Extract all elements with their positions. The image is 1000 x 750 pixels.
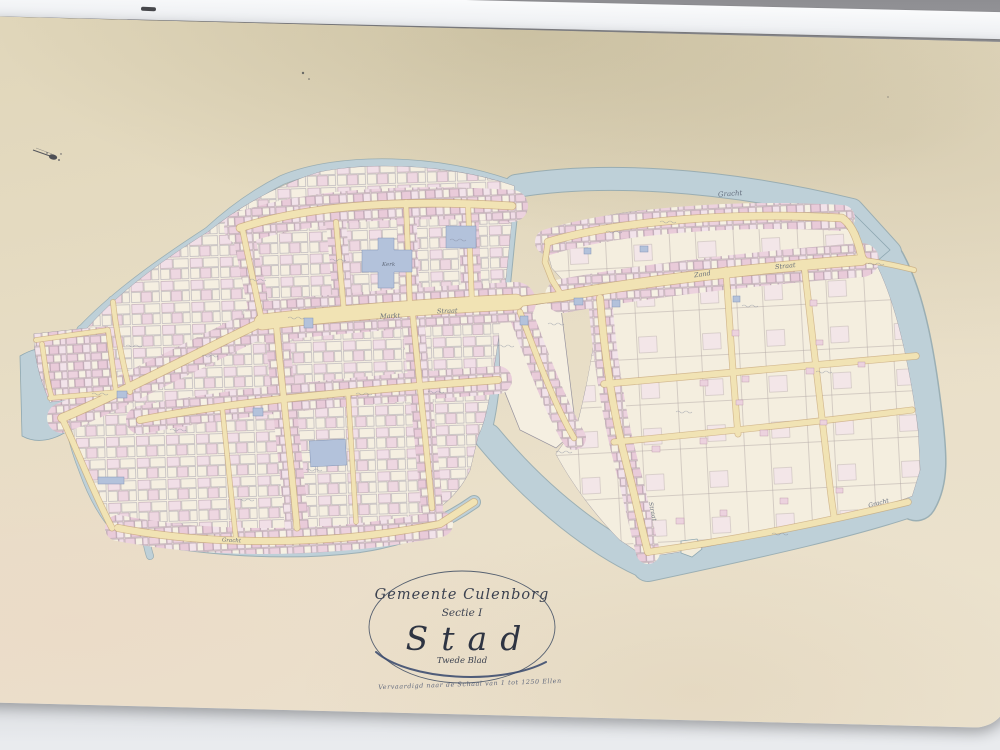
cartouche-scale-note: Vervaardigd naar de Schaal van 1 tot 125…	[378, 678, 562, 691]
photo-of-cadastral-map: Gracht Gracht Gracht Markt Straat Zand S…	[0, 0, 1000, 750]
paper-specks	[302, 72, 889, 98]
street-label-markt: Markt	[379, 312, 401, 321]
cartouche-section: Sectie I	[442, 607, 483, 619]
church-label: Kerk	[381, 262, 396, 268]
cartouche-title: Stad	[406, 619, 535, 658]
cartouche-municipality: Gemeente Culenborg	[375, 587, 550, 603]
ink-smudge	[33, 148, 62, 161]
map-drawing: Gracht Gracht Gracht Markt Straat Zand S…	[0, 0, 1000, 750]
title-cartouche: Gemeente Culenborg Sectie I Stad Twede B…	[369, 571, 562, 691]
large-blue-building-south	[309, 439, 346, 467]
street-label-markt-straat: Straat	[437, 307, 458, 316]
water-label-southwest: Gracht	[222, 537, 242, 544]
cartouche-sheet-note: Twede Blad	[437, 656, 488, 666]
water-label-north: Gracht	[718, 189, 743, 199]
paper-blemishes	[33, 72, 889, 161]
large-blue-building-northeast	[446, 226, 476, 248]
